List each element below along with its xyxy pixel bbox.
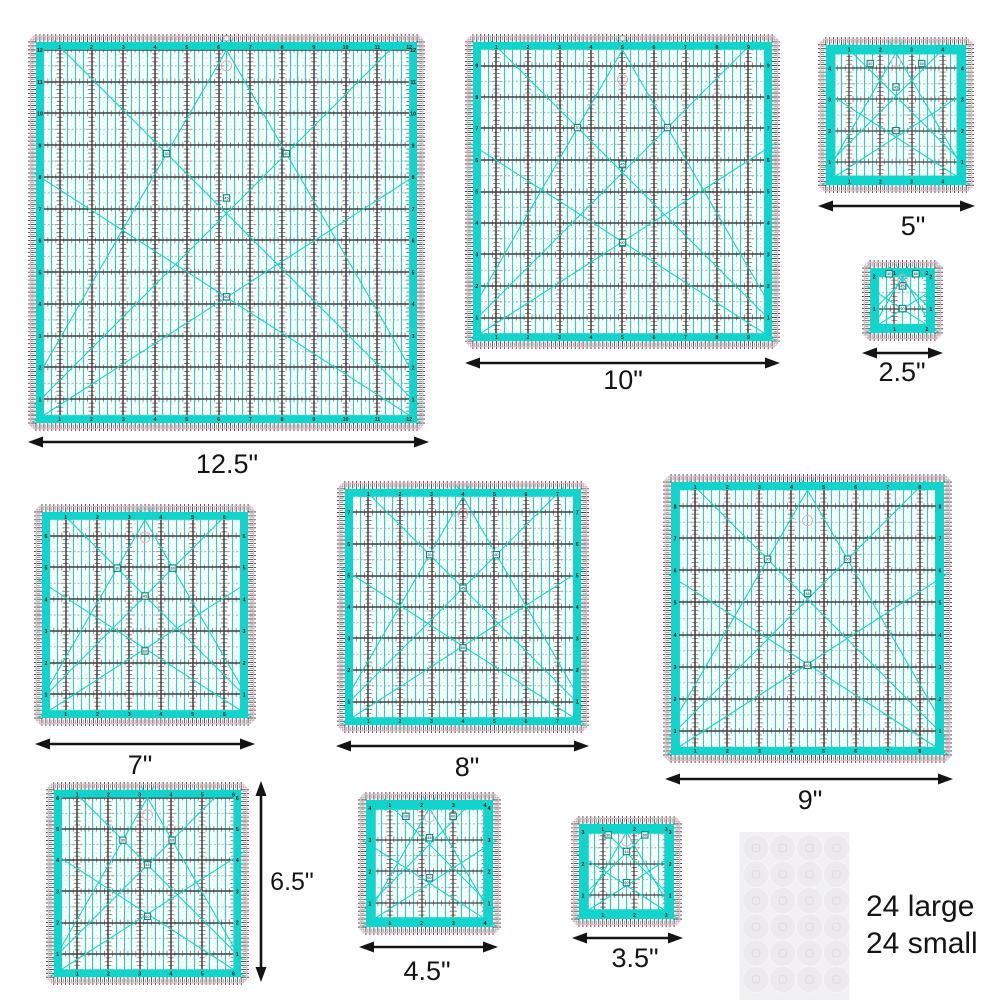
svg-text:8: 8 [716, 45, 719, 51]
svg-text:2.5": 2.5" [878, 357, 925, 387]
svg-text:9: 9 [412, 143, 415, 149]
svg-text:3: 3 [767, 253, 770, 259]
svg-text:4: 4 [169, 971, 172, 977]
svg-text:5: 5 [201, 971, 204, 977]
svg-text:4: 4 [576, 605, 579, 611]
svg-text:5: 5 [191, 515, 194, 521]
svg-text:8: 8 [281, 45, 284, 51]
svg-text:45: 45 [894, 85, 898, 89]
svg-text:7: 7 [347, 511, 350, 517]
svg-text:60: 60 [920, 62, 924, 66]
svg-text:1: 1 [873, 307, 876, 313]
svg-text:2: 2 [879, 48, 882, 54]
svg-text:6: 6 [56, 796, 59, 802]
svg-text:2: 2 [929, 274, 932, 280]
svg-text:2: 2 [633, 913, 636, 919]
svg-text:1: 1 [767, 316, 770, 322]
svg-text:2: 2 [576, 668, 579, 674]
svg-text:5: 5 [347, 574, 350, 580]
svg-text:6: 6 [412, 239, 415, 245]
svg-text:4: 4 [159, 712, 162, 718]
svg-text:6: 6 [767, 158, 770, 164]
svg-text:2: 2 [581, 862, 584, 868]
svg-text:24 large: 24 large [866, 890, 974, 923]
svg-text:6: 6 [232, 793, 235, 799]
svg-text:9": 9" [798, 785, 823, 815]
svg-text:12: 12 [37, 48, 43, 54]
svg-text:5: 5 [412, 270, 415, 276]
svg-text:2: 2 [961, 129, 964, 135]
svg-text:3: 3 [138, 793, 141, 799]
svg-text:6: 6 [576, 542, 579, 548]
svg-text:8: 8 [38, 175, 41, 181]
svg-text:2: 2 [527, 45, 530, 51]
svg-text:1: 1 [938, 729, 941, 735]
svg-text:5: 5 [767, 190, 770, 196]
svg-text:4: 4 [169, 793, 172, 799]
svg-text:9: 9 [747, 45, 750, 51]
svg-text:6: 6 [217, 45, 220, 51]
svg-text:3: 3 [961, 98, 964, 104]
svg-text:1: 1 [367, 492, 370, 498]
svg-text:7": 7" [128, 750, 153, 780]
svg-text:6: 6 [223, 515, 226, 521]
svg-text:9: 9 [312, 417, 315, 423]
svg-text:1: 1 [495, 45, 498, 51]
svg-text:3: 3 [558, 335, 561, 341]
svg-text:60: 60 [427, 876, 431, 880]
svg-text:4: 4 [44, 597, 47, 603]
svg-text:3: 3 [674, 665, 677, 671]
svg-text:7: 7 [886, 485, 889, 491]
svg-text:5": 5" [901, 211, 926, 241]
svg-text:6: 6 [232, 971, 235, 977]
svg-text:1: 1 [76, 793, 79, 799]
svg-text:8: 8 [475, 95, 478, 101]
svg-text:2: 2 [96, 712, 99, 718]
svg-text:6: 6 [854, 749, 857, 755]
svg-text:10: 10 [343, 417, 349, 423]
svg-text:6: 6 [938, 569, 941, 575]
svg-text:6: 6 [475, 158, 478, 164]
svg-text:3: 3 [758, 485, 761, 491]
svg-text:1: 1 [58, 417, 61, 423]
svg-text:4: 4 [790, 485, 793, 491]
svg-text:7: 7 [556, 492, 559, 498]
svg-text:3: 3 [558, 45, 561, 51]
svg-text:4: 4 [961, 66, 964, 72]
svg-text:24 small: 24 small [866, 927, 978, 960]
svg-text:9: 9 [475, 64, 478, 70]
svg-text:8: 8 [674, 504, 677, 510]
svg-text:1: 1 [581, 894, 584, 900]
svg-text:3: 3 [665, 827, 668, 833]
svg-text:2: 2 [412, 366, 415, 372]
svg-text:6: 6 [44, 534, 47, 540]
svg-text:3: 3 [56, 889, 59, 895]
svg-text:11: 11 [37, 80, 43, 86]
svg-text:2: 2 [90, 45, 93, 51]
svg-text:60: 60 [845, 558, 849, 562]
svg-text:60: 60 [900, 306, 904, 311]
svg-text:8: 8 [938, 504, 941, 510]
svg-text:10: 10 [343, 45, 349, 51]
svg-text:1: 1 [495, 335, 498, 341]
svg-text:6: 6 [217, 417, 220, 423]
svg-text:2: 2 [243, 661, 246, 667]
svg-text:4: 4 [941, 48, 944, 54]
svg-text:4: 4 [484, 803, 487, 809]
svg-text:2: 2 [828, 129, 831, 135]
svg-text:3: 3 [669, 830, 672, 836]
svg-text:6: 6 [854, 485, 857, 491]
svg-text:45: 45 [145, 863, 149, 867]
svg-text:7: 7 [576, 511, 579, 517]
svg-text:10": 10" [603, 365, 643, 395]
svg-text:4: 4 [941, 179, 944, 185]
svg-text:4: 4 [368, 806, 371, 812]
svg-text:1: 1 [848, 48, 851, 54]
svg-text:2: 2 [44, 661, 47, 667]
svg-text:1: 1 [367, 719, 370, 725]
svg-text:3: 3 [128, 712, 131, 718]
svg-text:11: 11 [375, 417, 381, 423]
svg-text:4: 4 [938, 633, 941, 639]
svg-text:2: 2 [633, 827, 636, 833]
svg-text:2: 2 [925, 271, 928, 277]
svg-text:1: 1 [576, 700, 579, 706]
svg-text:3: 3 [412, 334, 415, 340]
svg-text:1: 1 [893, 327, 896, 333]
svg-text:4: 4 [674, 633, 677, 639]
svg-text:2: 2 [107, 793, 110, 799]
svg-text:2: 2 [475, 284, 478, 290]
svg-text:1: 1 [44, 693, 47, 699]
svg-text:3: 3 [665, 913, 668, 919]
svg-text:2: 2 [938, 697, 941, 703]
svg-text:1: 1 [694, 485, 697, 491]
svg-text:6: 6 [38, 239, 41, 245]
svg-text:7: 7 [556, 719, 559, 725]
svg-text:45: 45 [427, 836, 431, 840]
svg-text:9: 9 [38, 143, 41, 149]
svg-text:1: 1 [475, 316, 478, 322]
svg-text:3: 3 [368, 838, 371, 844]
svg-text:60: 60 [805, 664, 809, 668]
svg-text:60: 60 [284, 152, 288, 156]
svg-text:7: 7 [249, 45, 252, 51]
svg-text:1: 1 [669, 894, 672, 900]
svg-text:7: 7 [475, 127, 478, 133]
svg-text:60: 60 [914, 271, 918, 276]
svg-text:4: 4 [590, 335, 593, 341]
svg-text:30: 30 [606, 833, 610, 837]
svg-text:4: 4 [488, 806, 491, 812]
svg-text:30: 30 [575, 126, 579, 130]
svg-text:3: 3 [122, 417, 125, 423]
svg-text:30: 30 [121, 839, 125, 843]
svg-text:2: 2 [674, 697, 677, 703]
svg-text:2: 2 [368, 870, 371, 876]
svg-text:4: 4 [462, 492, 465, 498]
svg-text:5: 5 [493, 492, 496, 498]
svg-text:5: 5 [201, 793, 204, 799]
svg-text:1: 1 [38, 397, 41, 403]
svg-text:4: 4 [38, 302, 41, 308]
svg-text:5: 5 [243, 566, 246, 572]
svg-text:5: 5 [493, 719, 496, 725]
svg-text:5: 5 [621, 335, 624, 341]
svg-text:5: 5 [185, 45, 188, 51]
svg-text:5: 5 [44, 566, 47, 572]
svg-text:60: 60 [143, 649, 147, 653]
svg-text:6: 6 [347, 542, 350, 548]
svg-text:5: 5 [38, 270, 41, 276]
svg-text:1: 1 [236, 952, 239, 958]
svg-text:7: 7 [767, 127, 770, 133]
svg-text:45: 45 [805, 592, 809, 596]
svg-text:1: 1 [347, 700, 350, 706]
svg-text:6: 6 [243, 534, 246, 540]
svg-text:3: 3 [910, 179, 913, 185]
svg-text:1: 1 [828, 160, 831, 166]
svg-text:2: 2 [669, 862, 672, 868]
svg-text:30: 30 [165, 152, 169, 156]
svg-text:8: 8 [918, 485, 921, 491]
svg-text:5: 5 [621, 45, 624, 51]
svg-text:2: 2 [399, 492, 402, 498]
svg-text:5: 5 [56, 827, 59, 833]
svg-text:6: 6 [674, 569, 677, 575]
svg-text:5: 5 [822, 485, 825, 491]
svg-text:6: 6 [653, 45, 656, 51]
svg-text:60: 60 [224, 295, 228, 299]
svg-text:6: 6 [223, 712, 226, 718]
svg-text:4: 4 [412, 302, 415, 308]
svg-text:7: 7 [38, 207, 41, 213]
svg-text:3: 3 [758, 749, 761, 755]
svg-text:2: 2 [347, 668, 350, 674]
svg-text:2: 2 [767, 284, 770, 290]
svg-text:60: 60 [461, 646, 465, 650]
svg-text:8: 8 [281, 417, 284, 423]
svg-text:4: 4 [828, 66, 831, 72]
svg-text:30: 30 [427, 553, 431, 557]
svg-text:3: 3 [138, 971, 141, 977]
svg-text:4: 4 [347, 605, 350, 611]
svg-text:60: 60 [145, 915, 149, 919]
svg-text:5: 5 [938, 601, 941, 607]
svg-text:3: 3 [38, 334, 41, 340]
svg-text:11: 11 [375, 45, 381, 51]
svg-text:10: 10 [410, 112, 416, 118]
svg-text:1: 1 [243, 693, 246, 699]
svg-text:2: 2 [96, 515, 99, 521]
svg-text:45: 45 [143, 594, 147, 598]
svg-text:3: 3 [128, 515, 131, 521]
svg-text:6: 6 [653, 335, 656, 341]
svg-text:60: 60 [171, 567, 175, 571]
svg-text:30: 30 [887, 271, 891, 276]
svg-text:12: 12 [410, 48, 416, 54]
svg-text:3: 3 [581, 830, 584, 836]
svg-text:2: 2 [420, 921, 423, 927]
svg-text:5: 5 [191, 712, 194, 718]
svg-text:3: 3 [430, 719, 433, 725]
svg-text:60: 60 [665, 126, 669, 130]
svg-text:1: 1 [76, 971, 79, 977]
svg-text:8": 8" [455, 752, 480, 782]
svg-text:45: 45 [224, 196, 228, 200]
svg-text:4: 4 [154, 417, 157, 423]
svg-text:1: 1 [64, 712, 67, 718]
svg-text:2: 2 [399, 719, 402, 725]
svg-text:7: 7 [684, 45, 687, 51]
svg-text:1: 1 [929, 307, 932, 313]
svg-text:60: 60 [643, 833, 647, 837]
svg-text:11: 11 [410, 80, 416, 86]
svg-text:2: 2 [90, 417, 93, 423]
svg-text:8: 8 [716, 335, 719, 341]
svg-text:3: 3 [236, 889, 239, 895]
svg-text:6.5": 6.5" [270, 868, 314, 896]
svg-text:4: 4 [462, 719, 465, 725]
svg-text:5: 5 [475, 190, 478, 196]
svg-text:8: 8 [767, 95, 770, 101]
svg-text:9: 9 [312, 45, 315, 51]
svg-text:3: 3 [475, 253, 478, 259]
svg-text:7: 7 [674, 536, 677, 542]
svg-text:1: 1 [694, 749, 697, 755]
svg-text:10: 10 [37, 112, 43, 118]
svg-text:1: 1 [388, 803, 391, 809]
svg-text:45: 45 [461, 587, 465, 591]
svg-text:12: 12 [406, 417, 412, 423]
svg-text:1: 1 [412, 397, 415, 403]
svg-text:3.5": 3.5" [611, 943, 658, 973]
svg-text:45: 45 [624, 850, 628, 854]
svg-text:2: 2 [38, 366, 41, 372]
svg-text:4.5": 4.5" [403, 956, 450, 986]
svg-text:30: 30 [765, 558, 769, 562]
svg-text:1: 1 [388, 921, 391, 927]
svg-text:4: 4 [56, 858, 59, 864]
svg-text:6: 6 [236, 796, 239, 802]
svg-text:4: 4 [767, 221, 770, 227]
svg-text:3: 3 [452, 803, 455, 809]
svg-text:3: 3 [452, 921, 455, 927]
svg-text:3: 3 [122, 45, 125, 51]
svg-text:45: 45 [620, 163, 624, 167]
svg-text:1: 1 [488, 901, 491, 907]
svg-text:4: 4 [243, 597, 246, 603]
svg-text:60: 60 [624, 881, 628, 885]
svg-text:2: 2 [488, 870, 491, 876]
svg-text:1: 1 [368, 901, 371, 907]
svg-text:4: 4 [154, 45, 157, 51]
svg-text:3: 3 [430, 492, 433, 498]
svg-text:1: 1 [56, 952, 59, 958]
svg-text:7: 7 [684, 335, 687, 341]
svg-text:4: 4 [484, 921, 487, 927]
svg-text:1: 1 [848, 179, 851, 185]
svg-text:60: 60 [894, 129, 898, 133]
svg-text:30: 30 [868, 62, 872, 66]
svg-text:3: 3 [938, 665, 941, 671]
svg-text:4: 4 [236, 858, 239, 864]
svg-text:30: 30 [404, 815, 408, 819]
svg-text:3: 3 [488, 838, 491, 844]
svg-text:2: 2 [726, 485, 729, 491]
svg-text:4: 4 [159, 515, 162, 521]
svg-text:2: 2 [56, 921, 59, 927]
svg-text:1: 1 [674, 729, 677, 735]
svg-text:6: 6 [525, 492, 528, 498]
svg-text:60: 60 [494, 553, 498, 557]
svg-text:5: 5 [236, 827, 239, 833]
svg-text:5: 5 [185, 417, 188, 423]
svg-text:3: 3 [828, 98, 831, 104]
svg-text:7: 7 [249, 417, 252, 423]
svg-text:8: 8 [412, 175, 415, 181]
svg-text:2: 2 [527, 335, 530, 341]
svg-text:3: 3 [44, 629, 47, 635]
svg-text:2: 2 [879, 179, 882, 185]
svg-text:30: 30 [115, 567, 119, 571]
svg-text:1: 1 [601, 913, 604, 919]
svg-text:3: 3 [910, 48, 913, 54]
svg-text:7: 7 [412, 207, 415, 213]
svg-text:1: 1 [893, 271, 896, 277]
svg-text:5: 5 [674, 601, 677, 607]
svg-text:1: 1 [64, 515, 67, 521]
svg-text:5: 5 [576, 574, 579, 580]
svg-text:9: 9 [747, 335, 750, 341]
svg-text:2: 2 [873, 274, 876, 280]
svg-text:8: 8 [918, 749, 921, 755]
svg-text:5: 5 [822, 749, 825, 755]
svg-text:60: 60 [620, 241, 624, 245]
svg-text:9: 9 [767, 64, 770, 70]
svg-text:7: 7 [886, 749, 889, 755]
svg-text:6: 6 [525, 719, 528, 725]
svg-text:1: 1 [58, 45, 61, 51]
svg-text:3: 3 [347, 637, 350, 643]
svg-text:3: 3 [576, 637, 579, 643]
svg-text:2: 2 [107, 971, 110, 977]
svg-text:60: 60 [451, 815, 455, 819]
svg-text:1: 1 [961, 160, 964, 166]
svg-text:2: 2 [925, 327, 928, 333]
svg-text:2: 2 [236, 921, 239, 927]
svg-text:4: 4 [790, 749, 793, 755]
svg-text:4: 4 [475, 221, 478, 227]
svg-text:3: 3 [243, 629, 246, 635]
svg-text:2: 2 [420, 803, 423, 809]
svg-text:1: 1 [601, 827, 604, 833]
svg-text:7: 7 [938, 536, 941, 542]
svg-text:60: 60 [170, 839, 174, 843]
svg-text:2: 2 [726, 749, 729, 755]
svg-text:12.5": 12.5" [196, 449, 258, 479]
svg-text:4: 4 [590, 45, 593, 51]
